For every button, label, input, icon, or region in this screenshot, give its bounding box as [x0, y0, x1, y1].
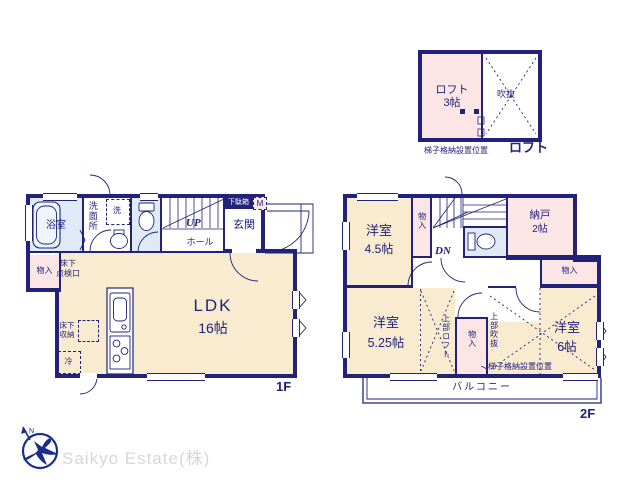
- loft-caption: ロフト: [509, 140, 548, 156]
- wall: [82, 198, 84, 253]
- wall: [430, 198, 432, 258]
- stairs-2f-icon: [433, 198, 506, 228]
- window: [342, 332, 350, 358]
- window: [147, 373, 205, 381]
- wall: [418, 50, 542, 54]
- void-above-label: 上部吹抜: [489, 312, 499, 360]
- wall: [488, 286, 516, 288]
- shoe-box-label: 下駄箱: [224, 197, 253, 209]
- wall: [506, 255, 601, 260]
- stairs-dn-label: DN: [435, 245, 451, 258]
- window: [596, 348, 604, 366]
- bedroom-525-size: 5.25帖: [350, 336, 422, 351]
- loft-ladder-note: 梯子格納設置位置: [424, 146, 488, 156]
- wall: [130, 198, 132, 253]
- wall: [538, 50, 542, 142]
- underfloor-hatch-label: 床下 点検口: [53, 259, 83, 278]
- loft-above-label: 上部ロフト: [441, 314, 451, 366]
- underfloor-storage-box: [78, 320, 99, 342]
- washroom-label: 洗面所: [87, 201, 98, 241]
- washbasin-icon: [111, 230, 128, 249]
- storage-name: 納戸: [508, 209, 572, 222]
- wall: [463, 256, 508, 258]
- toilet-2f-icon: [468, 233, 495, 250]
- wall: [347, 285, 411, 288]
- ldk-name: LDK: [178, 296, 248, 316]
- fridge-label: 冷: [58, 357, 79, 367]
- wall: [261, 249, 297, 253]
- closet-2f-c-label: 物入: [467, 330, 477, 366]
- wall: [455, 317, 457, 374]
- floorplan-canvas: N: [0, 0, 640, 480]
- window: [292, 319, 300, 337]
- bedroom-525-name: 洋室: [350, 315, 422, 331]
- wall: [463, 226, 508, 228]
- kitchen-counter-icon: [107, 288, 133, 374]
- ladder-note-2f: 梯子格納設置位置: [488, 362, 552, 372]
- wall: [481, 54, 483, 138]
- wall: [293, 249, 297, 378]
- balcony-label: バルコニー: [422, 382, 542, 394]
- underfloor-storage-label: 床下 収納: [56, 321, 78, 339]
- wall: [256, 249, 261, 253]
- bedroom-6-name: 洋室: [538, 320, 596, 336]
- wall: [540, 284, 601, 288]
- window: [140, 193, 158, 201]
- washer-label: 洗: [106, 206, 128, 216]
- stairs-up-label: UP: [186, 217, 201, 230]
- toilet-1f-icon: [139, 203, 154, 231]
- bedroom-6-size: 6帖: [538, 340, 596, 355]
- window: [43, 193, 77, 201]
- wall: [413, 256, 432, 258]
- wall: [573, 194, 577, 262]
- window: [357, 193, 398, 201]
- entrance-label: 玄関: [226, 219, 262, 232]
- floor2-caption: 2F: [580, 406, 595, 422]
- window: [596, 322, 604, 340]
- floor1-caption: 1F: [276, 379, 291, 395]
- north-label: N: [29, 428, 34, 435]
- loft-room-name: ロフト: [426, 84, 478, 97]
- bathroom-label: 浴室: [30, 220, 82, 232]
- ldk-size: 16帖: [178, 320, 248, 337]
- bedroom-45-size: 4.5帖: [345, 242, 413, 256]
- closet-2f-a-label: 物入: [417, 212, 427, 252]
- door-opening: [80, 373, 97, 379]
- wall: [463, 226, 465, 258]
- window: [390, 373, 437, 381]
- wall: [418, 50, 422, 142]
- meter-box-label: M: [253, 197, 267, 210]
- wall: [160, 198, 162, 253]
- wall: [223, 249, 232, 253]
- hall-label: ホール: [178, 237, 222, 248]
- compass-bird-icon: N: [21, 427, 58, 468]
- window: [292, 291, 300, 309]
- loft-room-size: 3帖: [426, 97, 478, 110]
- bedroom-45-name: 洋室: [345, 223, 413, 239]
- company-name: Saikyo Estate(株): [62, 444, 210, 469]
- storage-size: 2帖: [508, 224, 572, 236]
- wall: [455, 317, 488, 319]
- window: [563, 373, 598, 381]
- closet-2f-b-label: 物入: [542, 266, 597, 276]
- void-label: 吹抜: [497, 89, 515, 100]
